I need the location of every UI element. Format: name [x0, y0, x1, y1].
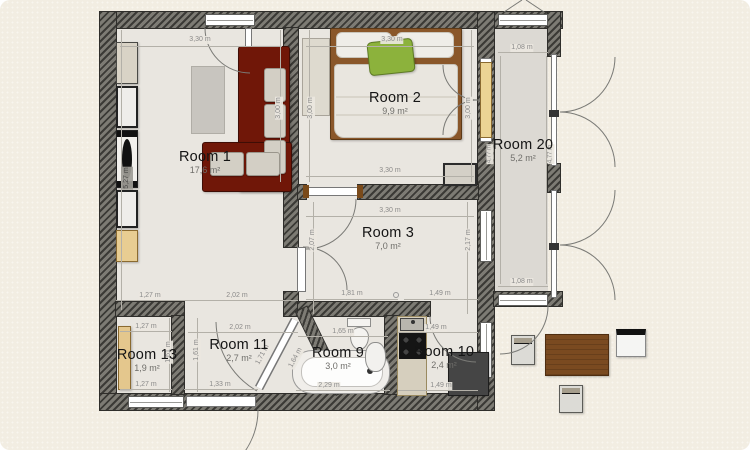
dim-bathtub-length: 2,29 m: [317, 382, 340, 390]
dining-table[interactable]: [545, 334, 609, 376]
dim-room1-right: 3,00 m: [275, 96, 283, 119]
room-name: Room 1: [179, 149, 231, 165]
room-label-room3[interactable]: Room 3 7,0 m²: [362, 225, 414, 251]
sofa-cushion: [246, 152, 280, 176]
dimension-line: [306, 46, 474, 47]
dim-room13-inner-top: 1,27 m: [134, 323, 157, 331]
dim-room11-height: 1,61 m: [193, 338, 201, 361]
room-label-room9[interactable]: Room 9 3,0 m²: [312, 345, 364, 371]
room-name: Room 11: [209, 337, 268, 353]
room-name: Room 20: [493, 137, 553, 153]
room-name: Room 3: [362, 225, 414, 241]
wall-room9-top: [298, 302, 430, 316]
window-room13-bottom[interactable]: [128, 396, 184, 408]
dimension-line: [184, 300, 298, 301]
floor-plan-canvas: 3,30 m 3,30 m 1,08 m 3,30 m 3,30 m 1,81 …: [0, 0, 750, 450]
door-pivot-marker: [393, 292, 399, 298]
room-label-room20[interactable]: Room 20 5,2 m²: [493, 137, 553, 163]
window-room20-bottom[interactable]: [498, 294, 548, 306]
dim-room3-bottom-left: 1,81 m: [340, 290, 363, 298]
room-label-room2[interactable]: Room 2 9,9 m²: [369, 90, 421, 116]
door-post-lower: [549, 243, 559, 250]
room-area: 2,4 m²: [414, 360, 474, 370]
dim-room3-bottom-right: 1,49 m: [428, 290, 451, 298]
room-name: Room 13: [117, 347, 177, 363]
dimension-line: [546, 56, 547, 284]
coffee-table[interactable]: [191, 66, 225, 134]
dimension-line: [306, 176, 474, 177]
dim-room10-bottom: 1,49 m: [429, 382, 452, 390]
tv-cabinet-bar: [117, 131, 137, 137]
room-area: 7,0 m²: [362, 241, 414, 251]
dim-room1-left: 5,27 m: [121, 166, 133, 189]
window-room3-right[interactable]: [480, 210, 492, 262]
dimension-line: [120, 46, 282, 47]
dim-room2-left: 3,00 m: [307, 96, 315, 119]
dim-room20-bottom: 1,08 m: [510, 278, 533, 286]
washbasin[interactable]: [365, 342, 386, 372]
dimension-line: [184, 389, 258, 390]
window-room1-top[interactable]: [205, 14, 255, 26]
dim-room13-bottom: 1,27 m: [134, 381, 157, 389]
faucet: [411, 320, 415, 324]
entrance-door-leaf[interactable]: [186, 396, 256, 407]
washing-machine[interactable]: [511, 335, 535, 365]
door-jamb-left: [303, 185, 309, 198]
cabinet[interactable]: [116, 86, 138, 128]
dim-room2-top: 3,30 m: [380, 36, 403, 44]
dimension-line: [498, 52, 548, 53]
dimension-line: [498, 286, 548, 287]
room-label-room11[interactable]: Room 11 2,7 m²: [209, 337, 268, 363]
room-area: 5,2 m²: [493, 153, 553, 163]
room-label-room1[interactable]: Room 1 17,6 m²: [179, 149, 231, 175]
dim-room2-bottom: 3,30 m: [378, 167, 401, 175]
dimension-line: [306, 299, 398, 300]
dim-room20-top: 1,08 m: [510, 44, 533, 52]
room-area: 17,6 m²: [179, 165, 231, 175]
dimension-line: [120, 389, 172, 390]
dim-room11-inner-top: 2,02 m: [228, 324, 251, 332]
room-area: 2,7 m²: [209, 353, 268, 363]
dim-room11-top: 2,02 m: [225, 292, 248, 300]
dim-room3-right: 2,17 m: [465, 228, 473, 251]
room-area: 3,0 m²: [312, 361, 364, 371]
dimension-line: [398, 332, 478, 333]
dim-room3-left: 2,07 m: [309, 228, 317, 251]
wall-left: [100, 12, 116, 410]
kitchen-sink[interactable]: [400, 318, 424, 331]
dishwasher[interactable]: [559, 385, 583, 413]
wall-room2-room3: [358, 185, 478, 199]
room-area: 1,9 m²: [117, 363, 177, 373]
wall-room20-right-top: [548, 12, 560, 56]
glazed-door-room2-room20[interactable]: [480, 62, 492, 138]
room-name: Room 2: [369, 90, 421, 106]
dimension-line: [298, 336, 388, 337]
wall-room20-right-mid: [548, 164, 560, 192]
dim-room3-top: 3,30 m: [378, 207, 401, 215]
dimension-line: [306, 216, 474, 217]
dim-room2-right: 3,00 m: [465, 96, 473, 119]
toilet-tank[interactable]: [347, 318, 371, 327]
dim-room13-top: 1,27 m: [138, 292, 161, 300]
shelf-unit[interactable]: [116, 42, 138, 84]
wall-room13-top: [116, 302, 184, 316]
door-jamb-right: [357, 185, 363, 198]
room-area: 9,9 m²: [369, 106, 421, 116]
window-room20-top[interactable]: [498, 14, 548, 26]
dimension-line: [313, 202, 314, 314]
dim-room11-bottom: 1,33 m: [208, 381, 231, 389]
door-leaf-room2-room3[interactable]: [308, 187, 358, 196]
room-name: Room 10: [414, 344, 474, 360]
room-label-room10[interactable]: Room 10 2,4 m²: [414, 344, 474, 370]
dimension-line: [500, 56, 501, 284]
sideboard[interactable]: [116, 230, 138, 262]
dimension-line: [467, 202, 468, 314]
dimension-line: [188, 332, 298, 333]
door-leaf-room1-room3[interactable]: [297, 247, 306, 292]
dimension-line: [296, 390, 390, 391]
door-post-upper: [549, 110, 559, 117]
room-label-room13[interactable]: Room 13 1,9 m²: [117, 347, 177, 373]
dimension-line: [120, 331, 172, 332]
presentation-board[interactable]: [616, 329, 646, 357]
dimension-line: [398, 390, 478, 391]
dim-room10-top: 1,49 m: [424, 324, 447, 332]
dim-room1-top: 3,30 m: [188, 36, 211, 44]
dim-room9-width: 1,65 m: [331, 328, 354, 336]
dimension-line: [116, 300, 184, 301]
room-name: Room 9: [312, 345, 364, 361]
cabinet[interactable]: [116, 190, 138, 228]
